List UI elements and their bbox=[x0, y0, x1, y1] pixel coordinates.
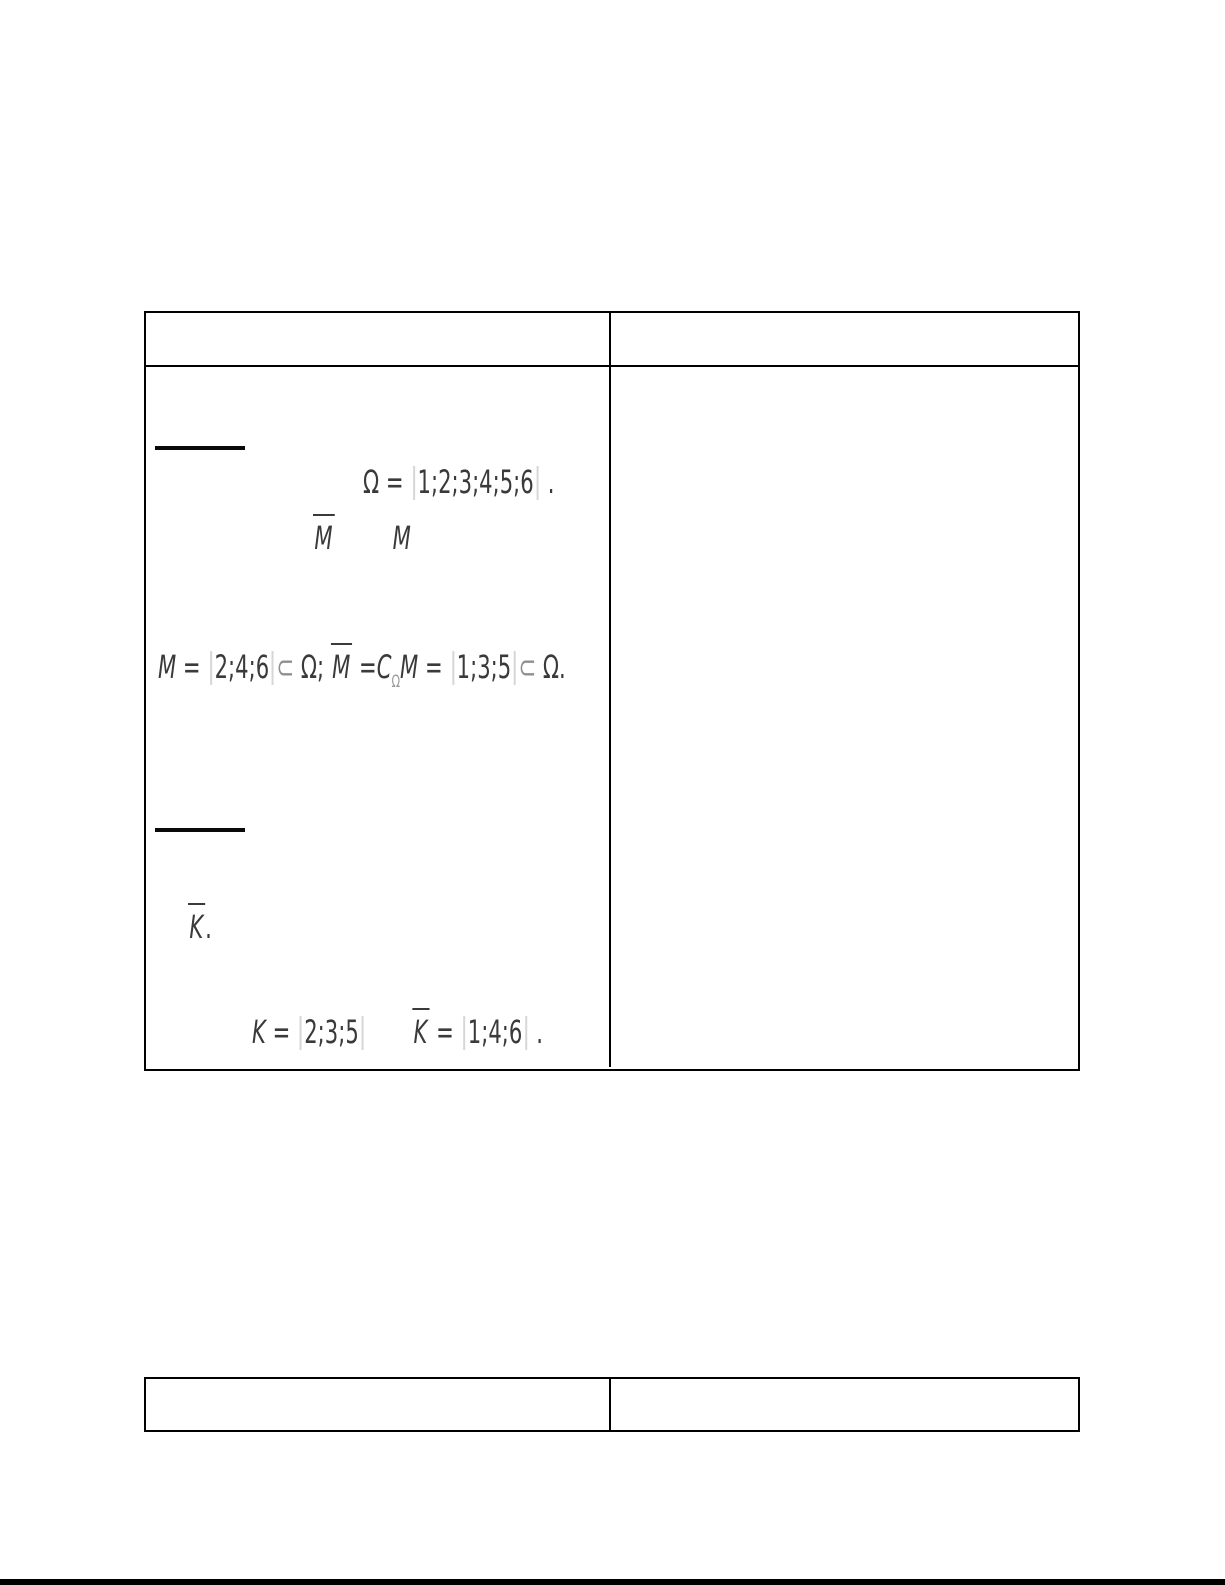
m-symbol: M bbox=[400, 648, 418, 686]
equals-sign: = bbox=[379, 463, 410, 501]
period: . bbox=[530, 1013, 543, 1051]
brace-bar bbox=[525, 1016, 527, 1050]
m-complement-formula: M = 2;4;6⊂ Ω; M =CΩM = 1;3;5⊂ Ω. bbox=[158, 643, 566, 692]
brace-bar bbox=[272, 651, 274, 685]
omega-set-formula: Ω = 1;2;3;4;5;6 . bbox=[363, 463, 554, 501]
complement-subscript-omega: Ω bbox=[391, 672, 400, 692]
answer-cell bbox=[611, 367, 1078, 1067]
m-bar-symbol: M bbox=[331, 643, 353, 686]
followup-right-cell bbox=[611, 1379, 1078, 1430]
table-header-row bbox=[146, 313, 1078, 367]
m-symbol: M bbox=[393, 519, 411, 557]
k-set-elements: 2;3;5 bbox=[304, 1013, 359, 1051]
omega-symbol: Ω bbox=[363, 463, 379, 501]
k-symbol: K bbox=[252, 1013, 266, 1051]
brace-bar bbox=[300, 1016, 302, 1050]
period: . bbox=[205, 908, 212, 946]
equals-sign: = bbox=[176, 648, 207, 686]
complement-operator: C bbox=[377, 648, 392, 686]
brace-bar bbox=[514, 651, 516, 685]
period: . bbox=[541, 463, 554, 501]
solution-cell: Ω = 1;2;3;4;5;6 . MM M = 2;4;6⊂ Ω; M =CΩ… bbox=[146, 367, 611, 1067]
equals-sign: = bbox=[352, 648, 376, 686]
empty-followup-table bbox=[144, 1377, 1080, 1432]
brace-bar bbox=[463, 1016, 465, 1050]
underlined-heading-rule-2 bbox=[155, 828, 245, 832]
document-page: Ω = 1;2;3;4;5;6 . MM M = 2;4;6⊂ Ω; M =CΩ… bbox=[0, 0, 1225, 1585]
worked-example-table: Ω = 1;2;3;4;5;6 . MM M = 2;4;6⊂ Ω; M =CΩ… bbox=[144, 311, 1080, 1071]
m-symbol: M bbox=[158, 648, 176, 686]
omega-set-elements: 1;2;3;4;5;6 bbox=[418, 463, 534, 501]
underlined-heading-rule-1 bbox=[155, 446, 245, 450]
brace-bar bbox=[536, 466, 538, 500]
k-complement-symbol-line: K. bbox=[188, 903, 212, 946]
table-header-left-cell bbox=[146, 313, 611, 365]
page-edge-bar bbox=[0, 1579, 1225, 1585]
brace-bar bbox=[210, 651, 212, 685]
omega-ref: Ω; bbox=[294, 648, 331, 686]
m-set-elements: 2;4;6 bbox=[215, 648, 270, 686]
omega-ref: Ω. bbox=[536, 648, 566, 686]
equals-sign: = bbox=[266, 1013, 297, 1051]
followup-left-cell bbox=[146, 1379, 611, 1430]
m-complement-elements: 1;3;5 bbox=[457, 648, 512, 686]
brace-bar bbox=[361, 1016, 363, 1050]
m-bar-symbol: M bbox=[313, 514, 335, 557]
table-body-row: Ω = 1;2;3;4;5;6 . MM M = 2;4;6⊂ Ω; M =CΩ… bbox=[146, 367, 1078, 1067]
subset-symbol: ⊂ bbox=[276, 648, 294, 686]
table-header-right-cell bbox=[611, 313, 1078, 365]
equals-sign: = bbox=[418, 648, 449, 686]
k-complement-elements: 1;4;6 bbox=[468, 1013, 523, 1051]
k-bar-symbol: K bbox=[412, 1008, 429, 1051]
subset-symbol: ⊂ bbox=[518, 648, 536, 686]
k-sets-formula: K = 2;3;5K = 1;4;6 . bbox=[252, 1008, 543, 1051]
equals-sign: = bbox=[429, 1013, 460, 1051]
brace-bar bbox=[413, 466, 415, 500]
k-bar-symbol: K bbox=[188, 903, 205, 946]
followup-table-row bbox=[146, 1379, 1078, 1430]
brace-bar bbox=[452, 651, 454, 685]
complement-notation-line: MM bbox=[313, 514, 411, 557]
